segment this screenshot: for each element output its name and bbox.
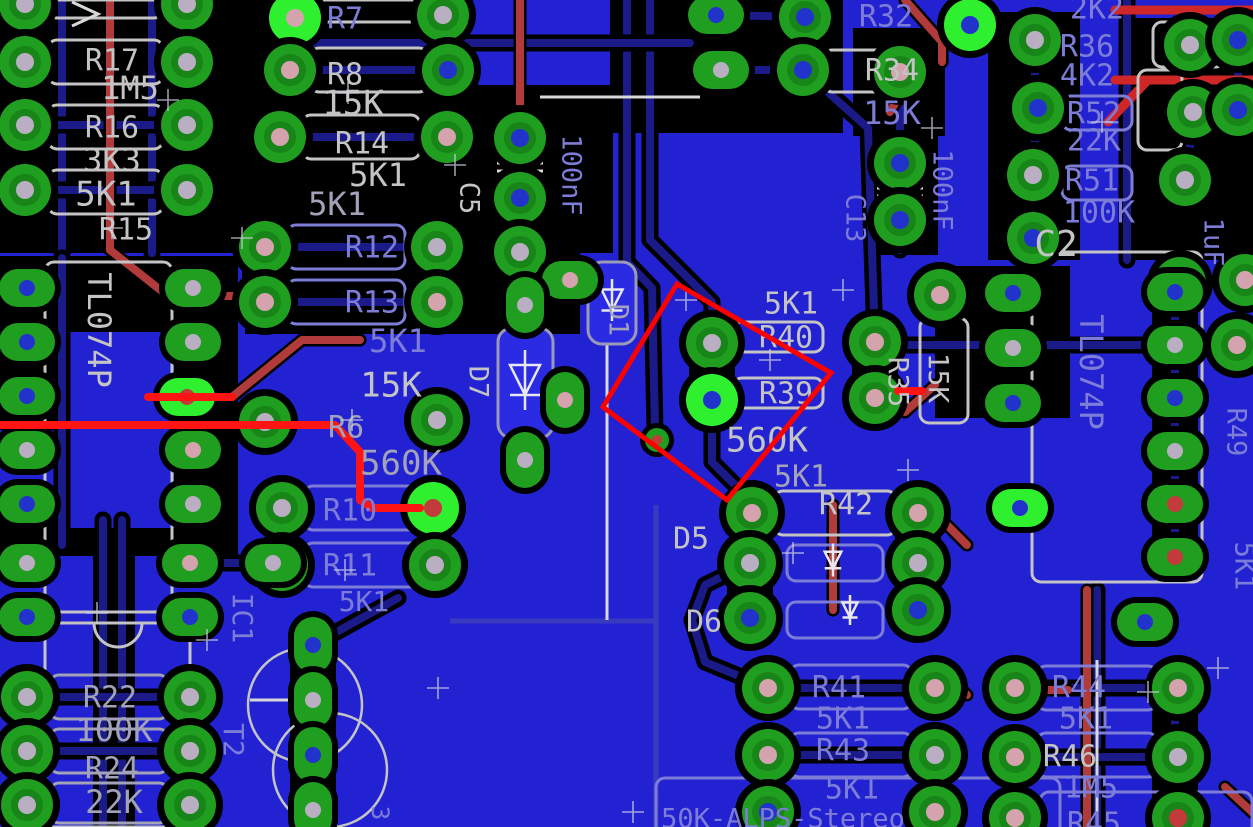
silk-label: 5K1	[816, 702, 870, 737]
pad[interactable]	[0, 425, 61, 475]
pad[interactable]	[979, 323, 1047, 373]
silk-label: R46	[1043, 740, 1097, 775]
pad[interactable]	[1002, 7, 1068, 73]
silk-label: R51	[1065, 164, 1119, 199]
silk-label: R43	[816, 734, 870, 769]
pad[interactable]	[540, 366, 590, 434]
silk-label: 50K-ALPS-Stereo	[661, 804, 905, 827]
silk-label: 3K3	[83, 141, 141, 179]
pad[interactable]	[735, 655, 801, 721]
silk-label: 22K	[1067, 124, 1121, 159]
silk-label: R7	[327, 2, 363, 37]
silk-label: 100K	[75, 711, 153, 749]
pad[interactable]	[735, 722, 801, 788]
silk-label: 5K1	[825, 772, 879, 807]
silk-label: 100nF	[927, 149, 958, 230]
pad[interactable]	[500, 426, 550, 494]
silk-label: 5K1	[75, 175, 136, 215]
silk-label: 15K	[322, 84, 384, 124]
pad[interactable]	[902, 722, 968, 788]
silk-label: C2	[1034, 224, 1077, 265]
pad[interactable]	[487, 105, 553, 171]
pad[interactable]	[979, 378, 1047, 428]
pad[interactable]	[249, 475, 315, 541]
pad[interactable]	[154, 92, 220, 158]
silk-label: 5K1	[1059, 702, 1113, 737]
pad[interactable]	[982, 655, 1048, 721]
silk-label: 5K1	[1229, 542, 1253, 591]
pcb-board[interactable]: R171M5R163K35K1R15R7R815KR145K15K1R12R13…	[0, 0, 1253, 827]
pad[interactable]	[1000, 142, 1066, 208]
pad[interactable]	[0, 592, 61, 642]
pad[interactable]	[232, 269, 298, 335]
pad[interactable]	[414, 104, 480, 170]
pad[interactable]	[986, 483, 1054, 533]
silk-label: R32	[859, 0, 913, 35]
silk-label: 5K1	[764, 287, 818, 322]
silk-label: R24	[85, 752, 139, 787]
silk-label: 1M5	[101, 69, 159, 107]
silk-label: R13	[345, 286, 399, 321]
pad[interactable]	[1141, 373, 1209, 423]
silk-label: 5K1	[339, 585, 390, 618]
silk-label: R49	[1221, 408, 1252, 457]
pad[interactable]	[159, 317, 227, 367]
silk-label: 22K	[85, 783, 144, 821]
pad[interactable]	[0, 479, 61, 529]
pad[interactable]	[0, 371, 61, 421]
silk-label: R6	[328, 411, 364, 446]
pad[interactable]	[288, 776, 338, 827]
pad[interactable]	[239, 538, 307, 588]
pad[interactable]	[159, 425, 227, 475]
silk-label: 2K2	[1070, 0, 1124, 27]
pad[interactable]	[1141, 426, 1209, 476]
silk-label: R11	[323, 549, 377, 584]
silk-label: D1	[603, 304, 634, 337]
pad[interactable]	[867, 130, 933, 196]
pad[interactable]	[1152, 147, 1218, 213]
pad[interactable]	[979, 268, 1047, 318]
silk-label: R35	[882, 357, 915, 408]
silk-label: D6	[686, 605, 722, 640]
pad[interactable]	[0, 263, 61, 313]
pad[interactable]	[885, 577, 951, 643]
pad[interactable]	[415, 37, 481, 103]
pad[interactable]	[156, 538, 224, 588]
silk-label: C5	[454, 182, 485, 215]
pad[interactable]	[1145, 655, 1211, 721]
pad[interactable]	[500, 271, 550, 339]
silk-label: 100nF	[556, 134, 587, 215]
silk-label: 5K1	[369, 322, 427, 360]
silk-label: 3	[366, 806, 394, 820]
pad[interactable]	[682, 0, 750, 40]
silk-label: 4K2	[1060, 59, 1114, 94]
pad[interactable]	[1111, 597, 1179, 647]
pad[interactable]	[1141, 320, 1209, 370]
silk-label: D7	[463, 366, 494, 399]
silk-label: R15	[99, 213, 153, 248]
pcb-canvas[interactable]: R171M5R163K35K1R15R7R815KR145K15K1R12R13…	[0, 0, 1253, 827]
pad[interactable]	[907, 262, 973, 328]
silk-label: 1M5	[1064, 771, 1118, 806]
silk-label: R12	[345, 231, 399, 266]
silk-label: R44	[1052, 671, 1106, 706]
silk-label: 15K	[863, 94, 922, 132]
pad[interactable]	[1141, 532, 1209, 582]
silk-label: R45	[1067, 807, 1121, 827]
pad[interactable]	[717, 585, 783, 651]
pad[interactable]	[0, 538, 61, 588]
pad[interactable]	[867, 187, 933, 253]
silk-label: 5K1	[308, 185, 366, 223]
silk-label: TL074P	[1072, 314, 1110, 430]
silk-label: R41	[812, 671, 866, 706]
pad[interactable]	[1145, 724, 1211, 790]
pad[interactable]	[1141, 479, 1209, 529]
silk-label: R42	[819, 488, 873, 523]
silk-label: R34	[865, 54, 919, 89]
silk-label: C13	[840, 194, 871, 243]
pad[interactable]	[687, 45, 755, 95]
pad[interactable]	[156, 592, 224, 642]
pad[interactable]	[247, 104, 313, 170]
silk-label: TL074P	[80, 272, 118, 388]
pad[interactable]	[159, 263, 227, 313]
pad[interactable]	[0, 317, 61, 367]
silk-label: IC1	[226, 593, 259, 644]
silk-label: 15K	[360, 366, 422, 406]
silk-label: 15K	[922, 353, 955, 404]
pad[interactable]	[154, 157, 220, 223]
silk-label: T2	[217, 723, 250, 757]
silk-label: D5	[673, 522, 709, 557]
pad[interactable]	[982, 724, 1048, 790]
silk-label: 1uF	[1198, 218, 1229, 267]
silk-label: 560K	[360, 444, 442, 484]
pad[interactable]	[402, 532, 468, 598]
pad[interactable]	[1141, 267, 1209, 317]
silk-label: R10	[323, 494, 377, 529]
pad[interactable]	[902, 655, 968, 721]
pad[interactable]	[257, 37, 323, 103]
pad[interactable]	[770, 37, 836, 103]
pad[interactable]	[154, 29, 220, 95]
pad[interactable]	[159, 479, 227, 529]
